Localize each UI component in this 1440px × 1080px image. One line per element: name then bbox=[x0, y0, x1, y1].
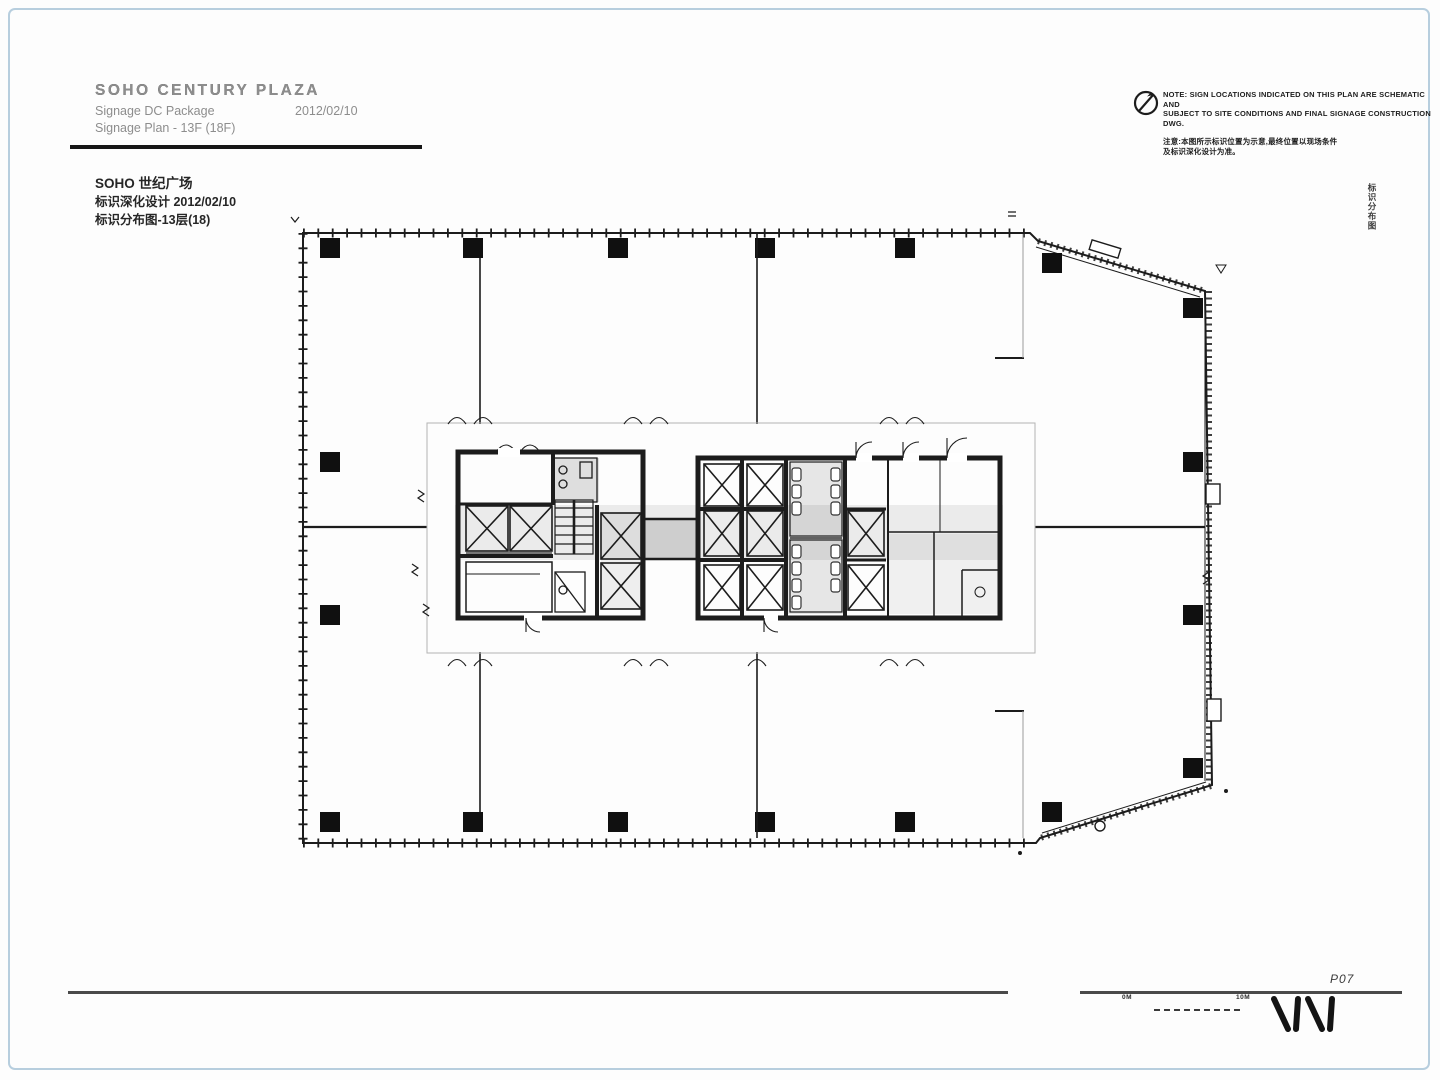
north-arrow-icon bbox=[1135, 92, 1157, 114]
drawing-sheet: SOHO CENTURY PLAZA Signage DC Package201… bbox=[0, 0, 1440, 1080]
aim-logo bbox=[1274, 999, 1332, 1029]
floor-plan bbox=[0, 0, 1440, 1080]
service-room bbox=[555, 572, 585, 612]
